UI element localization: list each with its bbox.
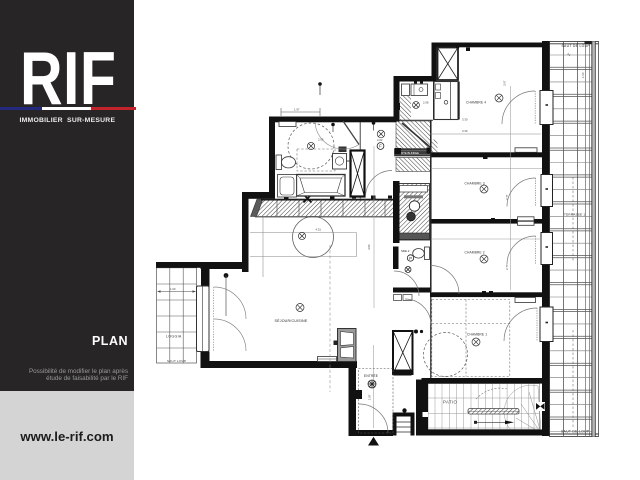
svg-text:PATIO: PATIO — [443, 400, 458, 405]
svg-text:ENTRÉE: ENTRÉE — [364, 373, 378, 378]
svg-text:CHAMBRE 4: CHAMBRE 4 — [466, 101, 486, 105]
svg-text:CHAMBRE 3: CHAMBRE 3 — [465, 182, 485, 186]
svg-text:3.07: 3.07 — [503, 80, 507, 86]
svg-text:LOGGIA: LOGGIA — [166, 335, 182, 339]
svg-text:CHAMBRE 2: CHAMBRE 2 — [465, 251, 485, 255]
svg-text:CHAMBRE 1: CHAMBRE 1 — [467, 333, 487, 337]
svg-text:2.77: 2.77 — [505, 264, 509, 270]
svg-text:2.08: 2.08 — [423, 101, 429, 105]
svg-text:SÉJOUR/CUISINE: SÉJOUR/CUISINE — [275, 318, 308, 323]
svg-text:3.30: 3.30 — [462, 129, 468, 133]
svg-text:3.30: 3.30 — [462, 118, 468, 122]
svg-text:2.77: 2.77 — [505, 194, 509, 200]
svg-text:1.97: 1.97 — [294, 108, 300, 112]
svg-text:P: P — [409, 256, 412, 261]
svg-text:1.97: 1.97 — [368, 394, 372, 400]
svg-text:∿: ∿ — [567, 52, 571, 57]
svg-text:SAUT DE LOUP: SAUT DE LOUP — [562, 44, 591, 48]
svg-text:SDE 2: SDE 2 — [401, 249, 410, 253]
svg-text:TERRASSE 1: TERRASSE 1 — [564, 212, 585, 216]
svg-text:2.05: 2.05 — [318, 138, 324, 142]
svg-text:SAUT DE LOUP: SAUT DE LOUP — [561, 430, 590, 434]
svg-text:1.00: 1.00 — [170, 287, 176, 291]
svg-text:1.00: 1.00 — [581, 72, 585, 78]
svg-text:4.51: 4.51 — [316, 228, 322, 232]
svg-text:2.02: 2.02 — [377, 138, 383, 142]
svg-text:F: F — [379, 144, 382, 149]
svg-text:4.90: 4.90 — [367, 244, 371, 250]
svg-text:SAUT LOUP: SAUT LOUP — [167, 359, 186, 363]
